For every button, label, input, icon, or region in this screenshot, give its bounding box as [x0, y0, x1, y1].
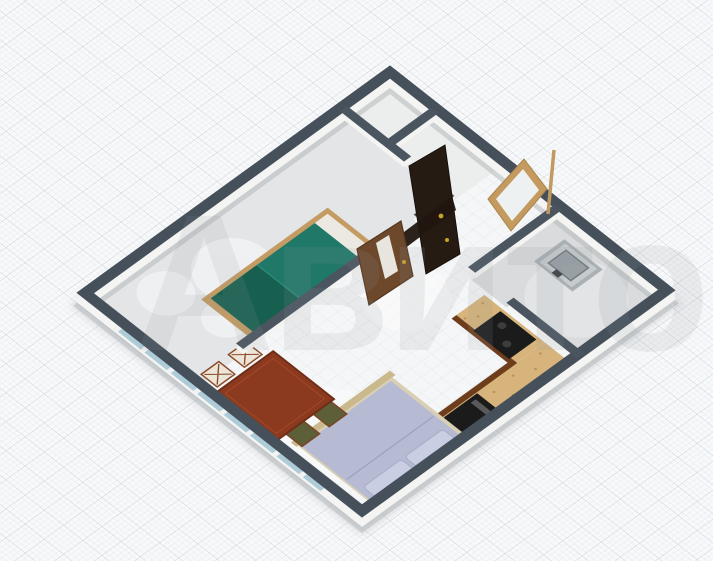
floor-plan-canvas: Авито	[0, 0, 713, 561]
watermark-text: Авито	[134, 174, 707, 392]
floor-plan-screenshot: Авито	[0, 0, 713, 561]
